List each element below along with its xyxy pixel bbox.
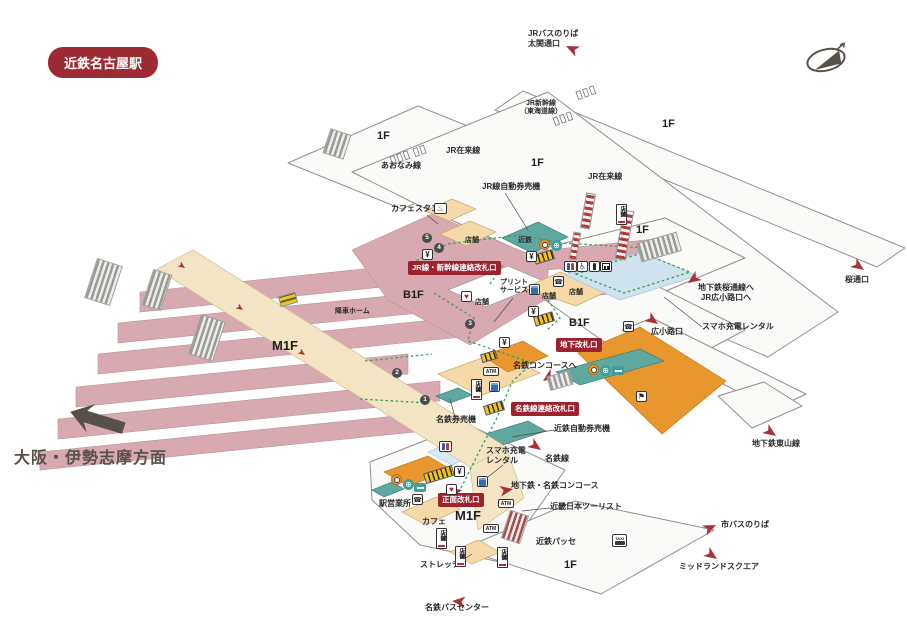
phone-charge-label-2: スマホ充電 レンタル [486,446,526,465]
coin-locker-icon [489,381,500,392]
person-icon [589,261,600,272]
cafe-label: カフェ [422,517,446,527]
hirokoji-exit-label: 広小路口 [651,327,683,337]
ticket-machine-icon: ¥ [454,466,465,477]
jr-bus-taiko-label: JRバスのりば 太閤通口 [528,29,578,48]
ticket-machine-icon: ¥ [528,306,539,317]
card-machine-icon [414,483,426,492]
meitetsu-transfer-gate-badge: 名鉄線連絡改札口 [511,402,579,416]
sakura-exit-label: 桜通口 [845,275,869,285]
jr-local-label: JR在来線 [588,172,622,182]
shop-label: 店舗 [542,293,556,301]
floor-label-1f: 1F [564,559,577,571]
meitetsu-bus-label: 名鉄バスセンター [425,603,489,613]
information-globe-icon: ⊕ [403,479,414,490]
meeting-flag-icon: ⚑ [636,391,647,402]
stretch-label: ストレッチ [420,560,460,570]
platform-number-5: 5 [422,233,432,243]
restroom-icon [439,441,452,452]
kintetsu-area-label: 近鉄 [518,237,532,245]
underground-gate-badge: 地下改札口 [556,338,602,352]
passe-label: 近鉄パッセ [536,537,576,547]
shinkansen-label: JR新幹線 （東海道線） [520,100,562,117]
phone-icon: ☎ [412,494,423,505]
shinkansen-line2: （東海道線） [520,108,562,115]
clock-icon [539,239,550,250]
higashiyama-label: 地下鉄東山線 [752,439,800,449]
shinkansen-line1: JR新幹線 [526,100,556,107]
shop-label: 店舗 [569,289,583,297]
taxi-label: TAXI [615,537,624,541]
atm-icon: ATM [483,524,499,533]
floor-label-b1f: B1F [403,289,424,301]
jr-local-label: JR在来線 [446,146,480,156]
station-title-badge: 近鉄名古屋駅 [48,47,158,78]
meitetsu-concourse-label: 名鉄コンコースへ [513,361,577,371]
floor-label-1f: 1F [636,224,649,236]
jr-transfer-gate-badge: JR線・新幹線連絡改札口 [408,261,501,275]
shop-label: 店舗 [465,237,479,245]
platform-number-2: 2 [392,368,402,378]
aed-heart-icon: ♥ [446,484,457,495]
sakura-route-label: 地下鉄桜通線へ JR広小路口へ [698,283,754,302]
card-machine-icon [612,366,624,375]
information-globe-icon: ⊕ [551,240,562,251]
arrow-meitetsu-line [527,438,544,454]
ticket-machine-icon: ¥ [526,251,537,262]
ticket-machine-icon: ¥ [422,249,433,260]
meitetsu-tvm-label: 名鉄券売機 [436,415,476,425]
floor-label-b1f: B1F [569,317,590,329]
coin-locker-icon [529,284,540,295]
print-service-label: プリント サービス [500,279,528,296]
charge-line1: スマホ充電 [486,446,526,455]
meitetsu-line-label: 名鉄線 [545,454,569,464]
floor-label-1f: 1F [377,130,390,142]
elevator-icon [600,261,612,272]
shop-sign: 店舗 [497,547,508,568]
coin-locker-icon [477,476,488,487]
floor-label-1f: 1F [662,118,675,130]
ticket-machine-icon: ¥ [499,337,510,348]
atm-icon: ATM [483,367,499,376]
charge-line2: レンタル [486,456,518,465]
platform-number-3: 3 [465,319,475,329]
shop-label: 店舗 [475,299,489,307]
alight-platform-label: 降車ホーム [335,308,370,316]
restroom-icon [564,261,577,272]
jr-tvm-label: JR線自動券売機 [482,182,540,192]
platform-number-4: 4 [434,243,444,253]
print-line2: サービス [500,287,528,294]
taiko-exit-line2: 太閤通口 [528,39,560,48]
cafe-stand-icon: ♨ [434,203,447,214]
shop-sign: 店舗 [436,528,447,549]
phone-charge-label: スマホ充電レンタル [702,322,774,332]
aed-heart-icon: ♥ [461,291,472,302]
osaka-direction-label: 大阪・伊勢志摩方面 [14,444,167,468]
map-base [0,0,907,634]
midland-label: ミッドランドスクエア [679,562,759,572]
shop-sign: 店舗 [471,379,482,400]
sakura-route-line1: 地下鉄桜通線へ [698,283,754,292]
taxi-stand-icon: TAXI [612,534,627,547]
floor-label-m1f: M1F [272,338,298,353]
wheelchair-icon: ♿ [577,261,588,272]
tourist-label: 近畿日本ツーリスト [550,502,622,512]
information-globe-icon: ⊕ [600,365,611,376]
city-bus-label: 市バスのりば [721,520,769,530]
chika-meitetsu-label: 地下鉄・名鉄コンコース [511,481,599,491]
floor-label-m1f: M1F [455,508,481,523]
shop-sign: 店舗 [455,546,466,567]
meitetsu-tvm-counter [436,388,472,403]
atm-icon: ATM [498,499,514,508]
office-label: 駅営業所 [379,499,411,509]
platform-number-1: 1 [420,395,430,405]
station-map: 近鉄名古屋駅 JR線・新幹線連絡改札口 地下改札口 名鉄線連絡改札口 正面改札口… [0,0,907,634]
main-gate-badge: 正面改札口 [438,493,484,507]
clock-icon [391,474,402,485]
shop-sign: 店舗 [616,204,627,225]
kintetsu-tvm-label: 近鉄自動券売機 [554,424,610,434]
sakura-route-line2: JR広小路口へ [701,293,751,302]
floor-label-1f: 1F [531,157,544,169]
phone-icon: ☎ [623,321,634,332]
jr-bus-line1: JRバスのりば [528,29,578,38]
compass-icon [805,43,850,75]
clock-icon [588,364,599,375]
print-line1: プリント [500,279,528,286]
aonami-label: あおなみ線 [381,161,421,171]
phone-icon: ☎ [553,276,564,287]
